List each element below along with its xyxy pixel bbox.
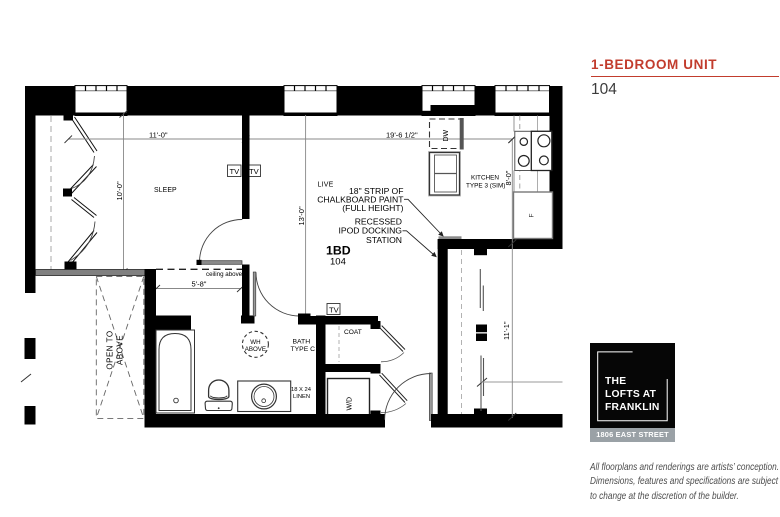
svg-text:TV: TV xyxy=(329,305,340,314)
svg-text:TV: TV xyxy=(230,167,241,176)
svg-text:LINEN: LINEN xyxy=(293,394,310,400)
svg-text:1BD: 1BD xyxy=(326,244,351,258)
svg-text:(FULL HEIGHT): (FULL HEIGHT) xyxy=(342,203,403,213)
svg-text:SLEEP: SLEEP xyxy=(154,187,177,194)
svg-text:11'-1": 11'-1" xyxy=(502,321,511,340)
svg-text:11'-0": 11'-0" xyxy=(149,130,168,139)
svg-text:13'-0": 13'-0" xyxy=(297,206,306,225)
svg-text:ABOVE: ABOVE xyxy=(245,346,266,353)
svg-text:STATION: STATION xyxy=(366,235,402,245)
svg-text:ceiling above: ceiling above xyxy=(206,271,243,278)
svg-text:19'-6 1/2": 19'-6 1/2" xyxy=(386,130,418,139)
svg-text:TYPE C: TYPE C xyxy=(291,346,316,353)
svg-text:5'-8": 5'-8" xyxy=(192,279,207,288)
svg-text:18 X 24: 18 X 24 xyxy=(291,387,312,393)
svg-text:10'-0": 10'-0" xyxy=(115,181,124,200)
svg-text:W/D: W/D xyxy=(347,397,354,411)
svg-text:104: 104 xyxy=(330,257,346,268)
svg-text:BATH: BATH xyxy=(293,339,311,346)
svg-text:WH: WH xyxy=(250,339,260,346)
svg-text:COAT: COAT xyxy=(344,329,362,336)
svg-text:ABOVE: ABOVE xyxy=(116,335,125,365)
svg-text:LIVE: LIVE xyxy=(318,181,334,188)
svg-text:TYPE 3 (SIM): TYPE 3 (SIM) xyxy=(466,182,505,189)
svg-text:OPEN TO: OPEN TO xyxy=(106,330,115,369)
svg-text:KITCHEN: KITCHEN xyxy=(471,175,499,182)
svg-text:TV: TV xyxy=(249,167,260,176)
svg-text:F: F xyxy=(529,214,536,218)
svg-text:DW: DW xyxy=(443,129,450,141)
